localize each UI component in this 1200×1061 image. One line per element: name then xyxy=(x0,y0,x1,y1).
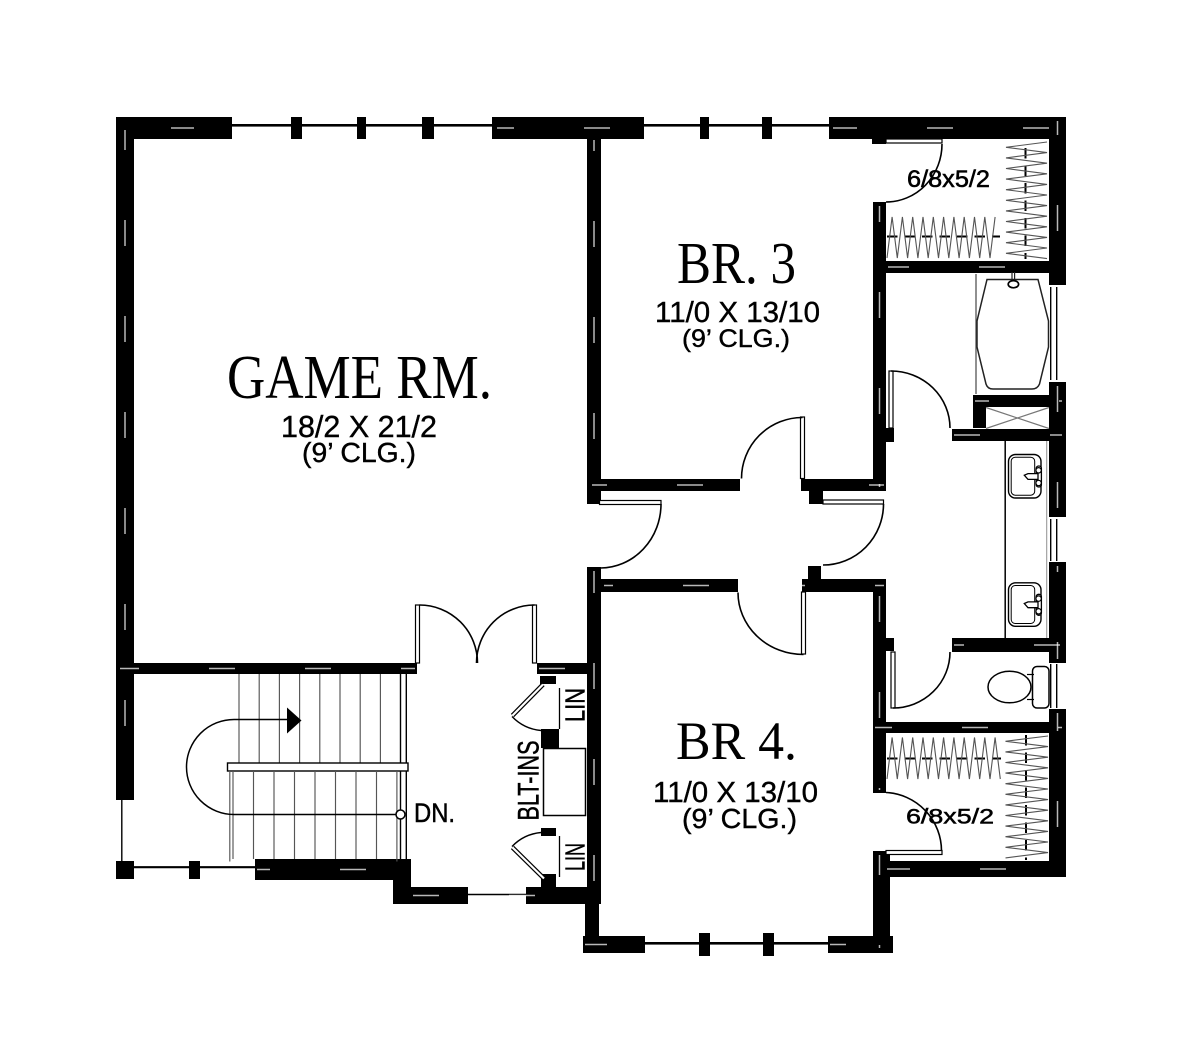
svg-text:GAME RM.: GAME RM. xyxy=(227,344,492,412)
svg-text:DN.: DN. xyxy=(414,798,455,828)
svg-text:(9’ CLG.): (9’ CLG.) xyxy=(682,325,790,353)
svg-text:6/8x5/2: 6/8x5/2 xyxy=(906,806,994,829)
svg-text:(9’ CLG.): (9’ CLG.) xyxy=(302,437,416,468)
svg-text:(9’ CLG.): (9’ CLG.) xyxy=(682,803,797,834)
svg-text:6/8x5/2: 6/8x5/2 xyxy=(907,166,990,193)
svg-text:BLT-INS: BLT-INS xyxy=(513,741,546,821)
svg-text:BR 4.: BR 4. xyxy=(676,711,797,771)
svg-text:LIN: LIN xyxy=(560,688,591,722)
svg-text:BR. 3: BR. 3 xyxy=(677,230,796,296)
svg-text:LIN: LIN xyxy=(560,843,591,871)
